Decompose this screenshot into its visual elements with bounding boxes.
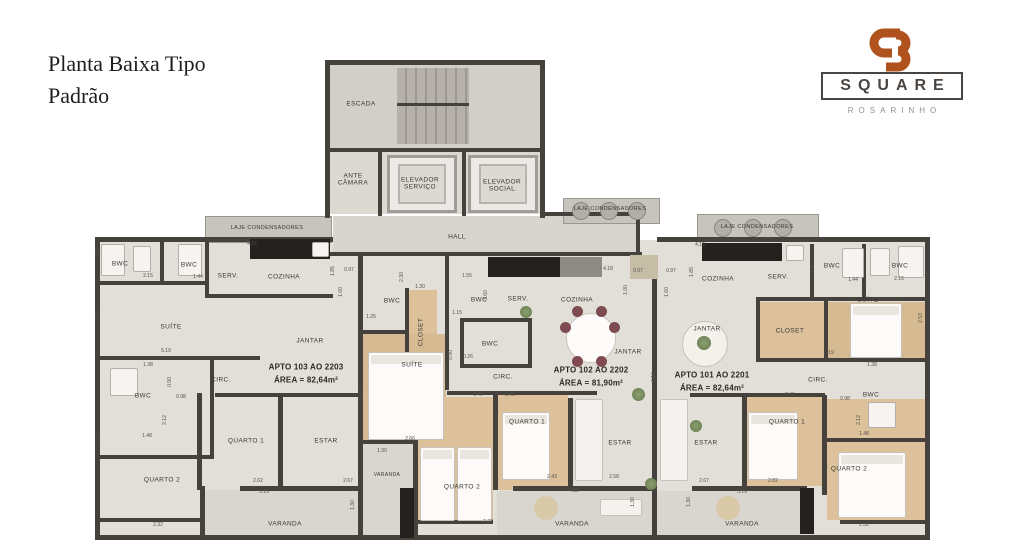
- room-label: VARANDA: [268, 520, 302, 527]
- dimension-label: 0.97: [666, 269, 676, 275]
- dimension-label: 1.44: [848, 278, 858, 284]
- room-label: QUARTO 2: [444, 483, 480, 490]
- room-label: ESTAR: [314, 437, 337, 444]
- wall: [742, 397, 747, 490]
- page-title-line2: Padrão: [48, 80, 206, 112]
- wall: [513, 486, 653, 491]
- floor-region: [868, 402, 896, 428]
- room-label: CIRC.: [211, 376, 231, 383]
- room-label: SUÍTE: [857, 296, 878, 303]
- dimension-label: 2.32: [153, 523, 163, 529]
- bed: [838, 452, 906, 518]
- dimension-label: 2.53: [919, 313, 925, 323]
- room-label: JANTAR: [693, 325, 720, 332]
- floor-region: [560, 322, 571, 333]
- dimension-label: 2.82: [768, 479, 778, 485]
- dimension-label: 2.15: [894, 277, 904, 283]
- wall: [528, 318, 532, 368]
- dimension-label: 1.55: [462, 274, 472, 280]
- floor-region: [630, 255, 658, 279]
- dimension-label: 2.53: [96, 310, 102, 320]
- dimension-label: 1.30: [687, 497, 693, 507]
- brand-subtitle: ROSARINHO: [812, 106, 972, 115]
- dimension-label: 2.72: [483, 520, 493, 526]
- room-label: COZINHA: [561, 296, 593, 303]
- dimension-label: 1.00: [624, 285, 630, 295]
- floor-region: [560, 257, 602, 277]
- wall: [692, 486, 807, 491]
- dimension-label: 1.30: [96, 247, 102, 257]
- dimension-label: 2.15: [143, 274, 153, 280]
- floor-region: [520, 306, 532, 318]
- dimension-label: 2.43: [547, 475, 557, 481]
- room-label: CLOSET: [417, 318, 424, 346]
- dimension-label: 1.60: [484, 290, 490, 300]
- dimension-label: 1.30: [377, 449, 387, 455]
- wall: [197, 393, 202, 490]
- dimension-label: 2.67: [343, 479, 353, 485]
- wall: [756, 358, 926, 362]
- apartment-area: ÁREA = 82,64m²: [274, 375, 338, 384]
- room-label: SUÍTE: [401, 361, 422, 368]
- room-label: JANTAR: [296, 337, 323, 344]
- common-area-label: LAJE CONDENSADORES: [721, 224, 794, 230]
- room-label: BWC: [112, 260, 128, 267]
- floor-region: [312, 242, 329, 257]
- dimension-label: 1.70: [811, 263, 817, 273]
- apartment-area: ÁREA = 82,64m²: [680, 383, 744, 392]
- page-title-line1: Planta Baixa Tipo: [48, 48, 206, 80]
- wall: [545, 212, 640, 216]
- room-label: VARANDA: [555, 520, 589, 527]
- room-label: COZINHA: [702, 275, 734, 282]
- room-label: BWC: [181, 261, 197, 268]
- floor-region: [632, 388, 645, 401]
- common-area-label: HALL: [448, 233, 466, 240]
- room-label: SUÍTE: [160, 323, 181, 330]
- dimension-label: 0.90: [168, 377, 174, 387]
- wall: [325, 148, 545, 152]
- room-label: CIRC.: [493, 373, 513, 380]
- room-label: ESTAR: [608, 439, 631, 446]
- dimension-label: 5.19: [259, 490, 269, 496]
- brand-monogram-icon: [812, 26, 972, 70]
- dimension-label: 7.10: [652, 372, 658, 382]
- room-label: BWC: [384, 297, 400, 304]
- floor-region: [870, 248, 890, 276]
- floor-region: [110, 368, 138, 396]
- room-label: BWC: [863, 391, 879, 398]
- dimension-label: 1.00: [339, 287, 345, 297]
- room-label: COZINHA: [268, 273, 300, 280]
- room-label: QUARTO 1: [769, 418, 805, 425]
- dimension-label: 2.67: [699, 479, 709, 485]
- stairs-graphic: [397, 68, 469, 144]
- dimension-label: 2.12: [163, 415, 169, 425]
- room-label: SERV.: [218, 272, 239, 279]
- dimension-label: 3.40: [360, 390, 366, 400]
- dimension-label: 0.26: [463, 355, 473, 361]
- floor-region: [609, 322, 620, 333]
- brand-logo: SQUARE ROSARINHO: [812, 26, 972, 115]
- wall: [160, 240, 164, 284]
- room-label: CLOSET: [776, 327, 804, 334]
- wall: [925, 240, 930, 540]
- wall: [822, 395, 827, 495]
- common-area-label: ESCADA: [346, 100, 375, 107]
- dimension-label: 1.85: [331, 266, 337, 276]
- room-label: SERV.: [768, 273, 789, 280]
- floor-plan-page: Planta Baixa Tipo Padrão SQUARE ROSARINH…: [0, 0, 1024, 558]
- dimension-label: 1.40: [473, 393, 483, 399]
- dimension-label: 4.35: [569, 489, 579, 495]
- room-label: ESTAR: [694, 439, 717, 446]
- dimension-label: 1.38: [867, 363, 877, 369]
- room-label: VARANDA: [725, 520, 759, 527]
- wall: [278, 393, 283, 490]
- floor-region: [596, 306, 607, 317]
- dimension-label: 3.41: [505, 393, 515, 399]
- room-label: VARANDA: [374, 473, 401, 479]
- wall: [240, 486, 360, 491]
- wall: [756, 299, 760, 361]
- room-label: BWC: [892, 262, 908, 269]
- wall: [325, 60, 330, 218]
- floor-region: [786, 245, 804, 261]
- room-label: QUARTO 2: [144, 476, 180, 483]
- wall: [462, 150, 466, 216]
- common-area-label: ANTE CÂMARA: [330, 173, 376, 188]
- wall: [493, 393, 498, 490]
- wall: [205, 240, 209, 298]
- wall: [445, 256, 449, 390]
- room-label: JANTAR: [614, 348, 641, 355]
- wall: [200, 486, 205, 538]
- wall: [568, 398, 573, 490]
- room-label: QUARTO 1: [509, 418, 545, 425]
- sofa: [575, 399, 603, 481]
- floor-region: [800, 488, 814, 534]
- dimension-label: 1.60: [665, 287, 671, 297]
- wall: [827, 438, 926, 442]
- common-area-label: ELEVADOR SOCIAL: [474, 179, 530, 194]
- dimension-label: 2.66: [405, 437, 415, 443]
- dimension-label: 4.18: [603, 267, 613, 273]
- bed: [850, 303, 902, 358]
- wall: [95, 535, 930, 540]
- floor-region: [716, 496, 740, 520]
- dimension-label: 2.62: [253, 479, 263, 485]
- dimension-label: 1.38: [143, 363, 153, 369]
- dimension-label: 1.48: [859, 432, 869, 438]
- brand-name-box: SQUARE: [821, 72, 962, 100]
- dimension-label: 1.85: [690, 267, 696, 277]
- sofa: [660, 399, 688, 481]
- page-title: Planta Baixa Tipo Padrão: [48, 48, 206, 112]
- apartment-title: APTO 102 AO 2202: [554, 365, 629, 374]
- apartment-title: APTO 103 AO 2203: [269, 362, 344, 371]
- dimension-label: 2.32: [859, 523, 869, 529]
- dimension-label: 2.58: [609, 475, 619, 481]
- dimension-label: 1.48: [142, 434, 152, 440]
- common-area-label: LAJE CONDENSADORES: [231, 225, 304, 231]
- dimension-label: 1.25: [366, 315, 376, 321]
- wall: [397, 103, 469, 106]
- common-area-label: ELEVADOR SERVIÇO: [392, 177, 448, 192]
- wall: [205, 294, 333, 298]
- wall: [325, 60, 545, 65]
- wall: [756, 297, 928, 301]
- wall: [95, 518, 205, 522]
- dimension-label: 1.15: [452, 311, 462, 317]
- room-label: CIRC.: [808, 376, 828, 383]
- dining-table: [566, 313, 616, 363]
- wall: [540, 60, 545, 218]
- wall: [330, 252, 642, 256]
- dimension-label: 0.97: [633, 269, 643, 275]
- dimension-label: 5.19: [824, 351, 834, 357]
- dimension-label: 3.12: [97, 432, 103, 442]
- dimension-label: 0.97: [344, 268, 354, 274]
- dimension-label: 0.98: [176, 395, 186, 401]
- kitchen-counter: [488, 257, 560, 277]
- kitchen-counter: [702, 243, 782, 261]
- wall: [360, 330, 408, 334]
- dimension-label: 1.30: [415, 285, 425, 291]
- floor-region: [842, 248, 864, 278]
- dimension-label: 3.41: [785, 393, 795, 399]
- wall: [210, 360, 214, 458]
- wall: [690, 393, 825, 397]
- wall: [95, 356, 260, 360]
- wall: [378, 150, 382, 216]
- floor-region: [534, 496, 558, 520]
- wall: [447, 391, 597, 395]
- room-label: QUARTO 2: [831, 465, 867, 472]
- floor-region: [400, 488, 414, 538]
- common-area-label: LAJE CONDENSADORES: [574, 206, 647, 212]
- wall: [652, 256, 657, 540]
- wall: [460, 318, 532, 322]
- dimension-label: 4.12: [695, 243, 705, 249]
- floor-region: [205, 490, 358, 536]
- dimension-label: 4.12: [247, 242, 257, 248]
- dimension-label: 2.30: [400, 272, 406, 282]
- dimension-label: 2.12: [857, 415, 863, 425]
- dimension-label: 1.44: [193, 275, 203, 281]
- floor-region: [572, 306, 583, 317]
- dimension-label: 0.90: [449, 350, 455, 360]
- brand-name: SQUARE: [833, 77, 950, 95]
- dimension-label: 5.19: [161, 349, 171, 355]
- wall: [840, 520, 926, 524]
- floor-region: [690, 420, 702, 432]
- apartment-title: APTO 101 AO 2201: [675, 370, 750, 379]
- floor-region: [133, 246, 151, 272]
- dimension-label: 1.30: [351, 500, 357, 510]
- floor-region: [697, 336, 711, 350]
- room-label: SERV.: [508, 295, 529, 302]
- wall: [460, 364, 532, 368]
- floor-region: [178, 244, 202, 276]
- dimension-label: 5.19: [737, 490, 747, 496]
- room-label: QUARTO 1: [228, 437, 264, 444]
- dimension-label: 1.30: [631, 497, 637, 507]
- wall: [95, 281, 209, 285]
- dimension-label: 0.98: [840, 397, 850, 403]
- room-label: BWC: [824, 262, 840, 269]
- room-label: BWC: [482, 340, 498, 347]
- floor-region: [645, 478, 657, 490]
- wall: [215, 393, 360, 397]
- apartment-area: ÁREA = 81,90m²: [559, 378, 623, 387]
- room-label: BWC: [135, 392, 151, 399]
